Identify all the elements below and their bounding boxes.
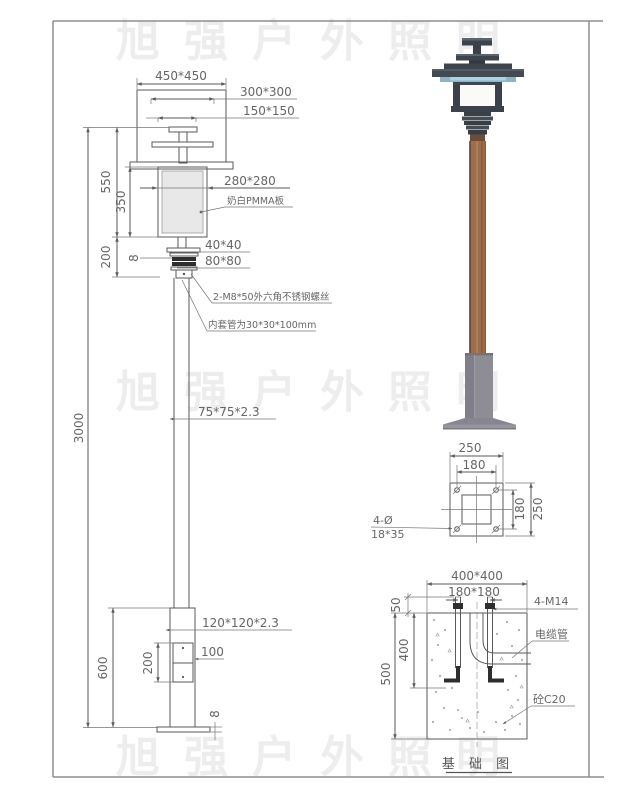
base-tube [170,608,195,727]
dim-80x80: 80*80 [205,254,242,268]
base-plate-elev [157,727,210,732]
anchor-bolt-left [444,597,463,681]
dim-door-height: 200 [141,652,155,675]
cable-conduit [470,613,531,664]
dim-ring-8: 8 [127,254,141,262]
note-pmma: 奶白PMMA板 [227,195,285,207]
dim-550: 550 [99,171,113,194]
dim-150x150: 150*150 [243,104,295,118]
note-screw: 2-M8*50外六角不锈钢螺丝 [213,291,330,303]
lamp-photo [432,38,524,430]
dim-300x300: 300*300 [240,85,292,99]
dim-found-500: 500 [379,663,393,686]
drawing-sheet: 旭强户外照明 旭强户外照明 旭强户外照明 450*450 300*300 [0,0,640,800]
dim-plate-250-right: 250 [531,498,545,521]
dim-400x400: 400*400 [451,569,503,583]
note-cable-conduit: 电缆管 [535,627,568,641]
dim-plate-250-top: 250 [459,441,482,455]
photo-diffuser-panel [460,85,495,106]
drawing-canvas: 450*450 300*300 150*150 [0,0,640,800]
photo-upper-roof [444,64,512,70]
note-holes-line2: 18*35 [371,528,405,541]
anchor-bolt-right [485,597,504,681]
dim-350: 350 [114,191,128,214]
photo-main-roof [432,71,524,77]
dim-200-neck: 200 [99,246,113,269]
note-concrete-grade: 砼C20 [533,693,566,706]
note-sleeve: 内套管为30*30*100mm [208,319,316,331]
dim-3000: 3000 [72,413,86,444]
dim-plate-180-top: 180 [463,458,486,472]
dim-door-width: 100 [201,645,224,659]
dim-600: 600 [96,657,110,680]
lamp-head-housing [137,90,226,162]
dim-450x450: 450*450 [155,69,207,83]
dim-found-400: 400 [397,639,411,662]
foundation-caption: 基 础 图 [442,757,514,772]
dim-plate-180-right: 180 [513,498,527,521]
note-holes-line1: 4-Ø [373,514,393,527]
dim-pole-section: 75*75*2.3 [198,405,260,419]
dim-40x40: 40*40 [205,238,242,252]
finial-detail [152,127,213,163]
note-anchor-bolts: 4-M14 [534,595,568,608]
lamp-elevation-drawing: 450*450 300*300 150*150 [72,69,332,740]
base-plate-plan: 250 180 180 250 4-Ø [371,441,545,543]
dim-found-50: 50 [389,597,403,612]
dim-plate-8: 8 [208,710,222,718]
dim-280x280: 280*280 [224,174,276,188]
pmma-panel [162,171,203,233]
neck-connector [167,237,200,278]
foundation-section: 400*400 180*180 4-M14 [379,569,578,773]
dim-base-tube: 120*120*2.3 [202,616,279,630]
